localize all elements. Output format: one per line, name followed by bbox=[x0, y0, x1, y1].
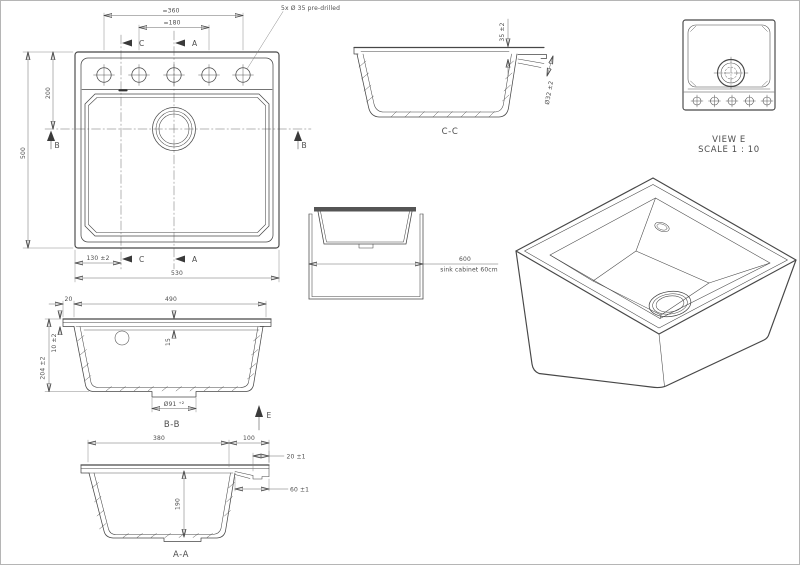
section-cc-label: C-C bbox=[442, 127, 459, 137]
section-bb: 20 490 10 ±2 204 ±2 15 Ø91 ⁺² B-B E bbox=[40, 296, 272, 430]
view-e-drain bbox=[714, 57, 748, 89]
dim-rim-width: 20 bbox=[65, 296, 73, 303]
sink-body-silhouette bbox=[516, 251, 796, 388]
dim-width: 530 bbox=[171, 270, 183, 277]
dim-center-offset: 200 bbox=[45, 87, 52, 99]
isometric-drain bbox=[647, 289, 692, 320]
dim-hole-span-outer: =360 bbox=[162, 8, 179, 15]
section-aa: 380 100 20 ±1 60 ±1 190 A-A bbox=[81, 435, 309, 560]
dim-deck-width: 100 bbox=[243, 435, 255, 442]
dim-left-offset: 130 ±2 bbox=[86, 255, 109, 262]
section-a-letter-bottom: A bbox=[192, 255, 198, 264]
plan-faucet-holes bbox=[94, 65, 254, 86]
dim-ledge-depth: 60 ±1 bbox=[290, 487, 309, 494]
dim-drain-diameter: Ø91 ⁺² bbox=[164, 401, 185, 408]
section-c-arrow-bottom bbox=[122, 256, 132, 263]
section-cc-hatching bbox=[359, 61, 514, 117]
section-bb-dimensions: 20 490 10 ±2 204 ±2 15 Ø91 ⁺² bbox=[40, 296, 267, 412]
sink-technical-drawing-page: =360 =180 5x Ø 35 pre-drilled 500 200 13… bbox=[0, 0, 800, 565]
view-e-mounting-holes bbox=[691, 95, 773, 107]
isometric-view bbox=[516, 178, 796, 388]
technical-drawing: =360 =180 5x Ø 35 pre-drilled 500 200 13… bbox=[1, 1, 800, 565]
section-aa-hatching bbox=[92, 483, 235, 538]
section-a-arrow-bottom bbox=[175, 256, 185, 263]
bowl-edge bbox=[85, 94, 269, 236]
section-b-letter-left: B bbox=[55, 141, 60, 150]
dim-bowl-width: 380 bbox=[153, 435, 165, 442]
cabinet-outline bbox=[309, 214, 423, 299]
section-b-letter-right: B bbox=[302, 141, 307, 150]
section-a-arrow-top bbox=[175, 40, 185, 47]
dim-ledge-thickness: 20 ±1 bbox=[287, 454, 306, 461]
section-c-arrow-top bbox=[122, 40, 132, 47]
section-a-letter-top: A bbox=[192, 39, 198, 48]
view-e-arrow: E bbox=[255, 405, 272, 430]
view-e-letter: E bbox=[267, 411, 272, 420]
dim-inner-width: 490 bbox=[165, 296, 177, 303]
dim-rim-height: 10 ±2 bbox=[51, 333, 58, 352]
dim-deck-depth: 15 bbox=[165, 338, 172, 346]
dim-height-outer: 500 bbox=[20, 147, 27, 159]
view-e: VIEW E SCALE 1 : 10 bbox=[683, 20, 775, 155]
dim-overflow-depth: 35 ±2 bbox=[499, 22, 506, 41]
view-e-scale: SCALE 1 : 10 bbox=[698, 145, 760, 155]
dim-overflow-diameter: Ø32 ±2 bbox=[544, 80, 555, 105]
section-b-arrow-right bbox=[294, 131, 302, 142]
section-bb-label: B-B bbox=[164, 420, 180, 430]
isometric-overflow-hole bbox=[654, 220, 671, 233]
sink-flange-band bbox=[314, 207, 416, 212]
section-c-letter-bottom: C bbox=[139, 255, 145, 264]
section-cc-dimensions: 35 ±2 Ø32 ±2 bbox=[499, 19, 555, 105]
dim-hole-span-inner: =180 bbox=[163, 20, 180, 27]
section-b-arrow-left bbox=[47, 131, 55, 142]
plan-section-arrows: C A C A B B bbox=[47, 39, 307, 264]
plan-view: =360 =180 5x Ø 35 pre-drilled 500 200 13… bbox=[20, 5, 340, 282]
cabinet-front-view: 600 sink cabinet 60cm bbox=[309, 207, 498, 299]
plan-dimensions: =360 =180 5x Ø 35 pre-drilled 500 200 13… bbox=[20, 5, 340, 282]
dim-bowl-depth: 190 bbox=[175, 498, 182, 510]
note-predrilled: 5x Ø 35 pre-drilled bbox=[281, 5, 340, 12]
overflow-hole-section bbox=[115, 331, 129, 345]
dim-total-depth: 204 ±2 bbox=[40, 356, 47, 379]
bowl-opening-edge bbox=[550, 198, 770, 319]
view-e-label: VIEW E bbox=[712, 135, 746, 145]
section-aa-dimensions: 380 100 20 ±1 60 ±1 190 bbox=[88, 435, 309, 537]
dim-cabinet-width: 600 bbox=[459, 256, 471, 263]
cabinet-dimensions: 600 sink cabinet 60cm bbox=[309, 256, 498, 274]
section-c-letter-top: C bbox=[139, 39, 145, 48]
section-cc: 35 ±2 Ø32 ±2 C-C bbox=[354, 19, 555, 137]
section-aa-label: A-A bbox=[173, 550, 189, 560]
drain-stub bbox=[359, 244, 373, 248]
cabinet-note: sink cabinet 60cm bbox=[440, 267, 498, 274]
